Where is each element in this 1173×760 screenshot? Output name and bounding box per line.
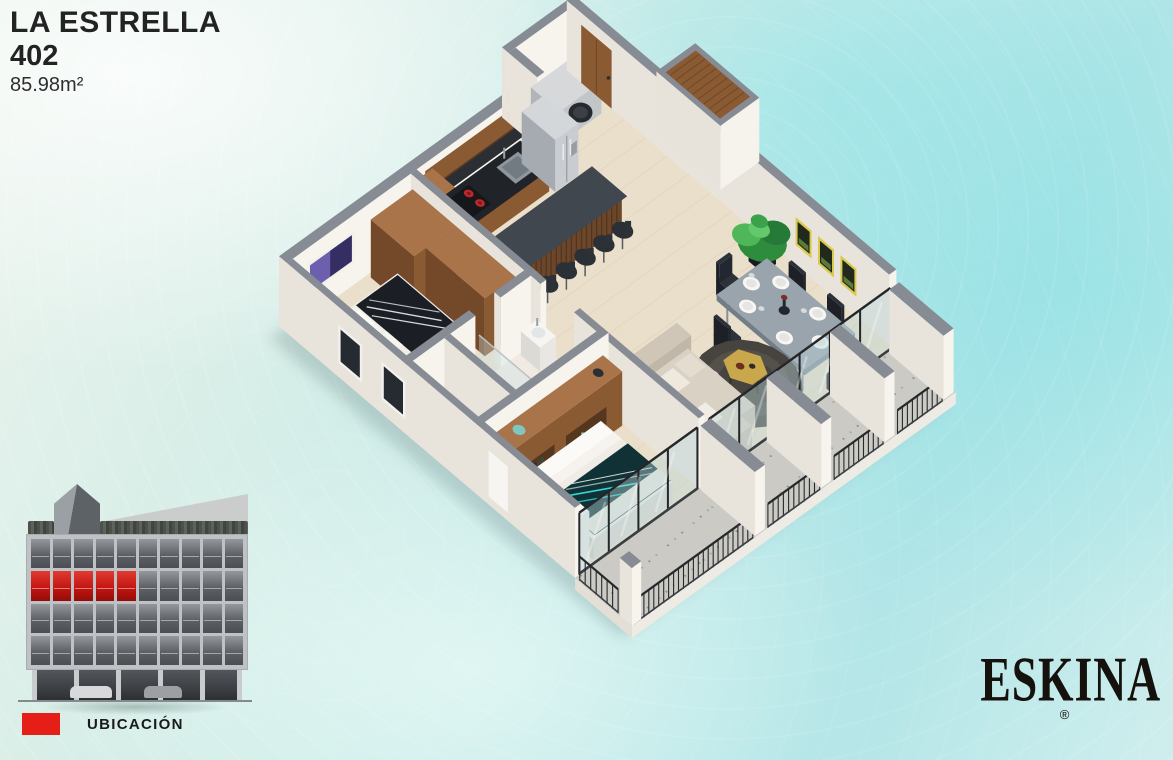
facade-window xyxy=(139,636,158,665)
facade-window xyxy=(53,636,72,665)
facade-window-grid xyxy=(26,534,248,670)
facade-window xyxy=(225,571,244,600)
facade-window xyxy=(31,604,50,633)
facade-window xyxy=(225,539,244,568)
roof-slope xyxy=(100,494,248,522)
facade-window xyxy=(182,636,201,665)
car-icon xyxy=(144,686,182,698)
facade-window xyxy=(117,539,136,568)
facade-window xyxy=(160,604,179,633)
facade-window xyxy=(139,571,158,600)
location-swatch xyxy=(22,713,60,735)
facade-window xyxy=(31,636,50,665)
facade-window-highlighted xyxy=(117,571,136,600)
facade-window xyxy=(53,604,72,633)
facade-window xyxy=(139,604,158,633)
facade-window xyxy=(74,636,93,665)
ground-line xyxy=(18,700,252,702)
facade-window xyxy=(182,571,201,600)
facade-window-highlighted xyxy=(53,571,72,600)
location-label: UBICACIÓN xyxy=(87,716,184,733)
location-legend: UBICACIÓN xyxy=(22,713,184,735)
building-elevation xyxy=(16,484,254,710)
garage-pillar xyxy=(237,670,242,700)
facade-window-highlighted xyxy=(74,571,93,600)
gable-roof xyxy=(54,484,100,536)
facade-window xyxy=(74,604,93,633)
facade-window xyxy=(203,636,222,665)
car-icon xyxy=(70,686,112,698)
facade-window xyxy=(96,539,115,568)
garage-level xyxy=(32,670,242,700)
facade-window xyxy=(139,539,158,568)
brand-block: ESKINA® URBAN CORNER LIVING xyxy=(968,655,1160,760)
facade-window xyxy=(160,539,179,568)
roof-hedge xyxy=(100,521,248,535)
facade-window xyxy=(96,604,115,633)
facade-window xyxy=(117,604,136,633)
facade-window xyxy=(203,604,222,633)
brand-logo: ESKINA xyxy=(980,649,1161,712)
facade-window xyxy=(96,636,115,665)
facade-window xyxy=(225,604,244,633)
facade-window xyxy=(160,636,179,665)
garage-pillar xyxy=(200,670,205,700)
facade-window xyxy=(31,539,50,568)
facade-window xyxy=(203,539,222,568)
facade-window xyxy=(53,539,72,568)
facade-window xyxy=(74,539,93,568)
garage-pillar xyxy=(32,670,37,700)
facade-window xyxy=(117,636,136,665)
facade-window xyxy=(225,636,244,665)
facade-window xyxy=(203,571,222,600)
facade-window-highlighted xyxy=(31,571,50,600)
garage-pillar xyxy=(116,670,121,700)
facade-window-highlighted xyxy=(96,571,115,600)
facade-window xyxy=(182,539,201,568)
roof-hedge xyxy=(28,521,54,535)
facade-window xyxy=(182,604,201,633)
facade-window xyxy=(160,571,179,600)
